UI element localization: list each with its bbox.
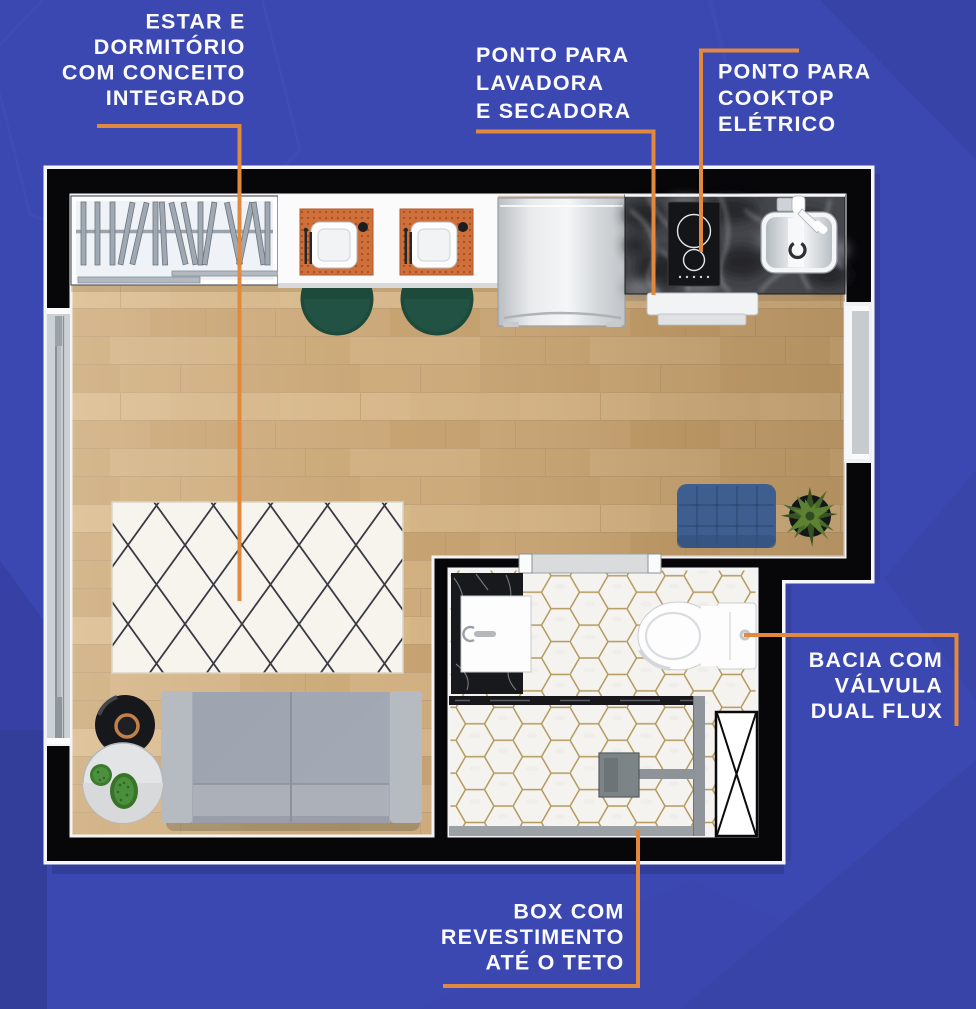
svg-text:INTEGRADO: INTEGRADO bbox=[106, 86, 246, 110]
svg-text:E SECADORA: E SECADORA bbox=[476, 99, 631, 123]
svg-text:PONTO PARA: PONTO PARA bbox=[476, 43, 629, 67]
svg-text:DUAL FLUX: DUAL FLUX bbox=[811, 699, 943, 723]
svg-text:ELÉTRICO: ELÉTRICO bbox=[718, 111, 836, 136]
svg-text:DORMITÓRIO: DORMITÓRIO bbox=[94, 34, 246, 59]
svg-text:BOX COM: BOX COM bbox=[513, 900, 624, 924]
svg-text:COM CONCEITO: COM CONCEITO bbox=[62, 61, 246, 85]
svg-text:REVESTIMENTO: REVESTIMENTO bbox=[441, 925, 625, 949]
svg-text:VÁLVULA: VÁLVULA bbox=[835, 673, 943, 698]
svg-text:COOKTOP: COOKTOP bbox=[718, 86, 835, 110]
svg-text:PONTO PARA: PONTO PARA bbox=[718, 60, 871, 84]
svg-text:BACIA COM: BACIA COM bbox=[809, 648, 943, 672]
svg-text:ATÉ O TETO: ATÉ O TETO bbox=[485, 950, 624, 975]
svg-text:ESTAR E: ESTAR E bbox=[146, 10, 246, 34]
svg-text:LAVADORA: LAVADORA bbox=[476, 71, 604, 95]
